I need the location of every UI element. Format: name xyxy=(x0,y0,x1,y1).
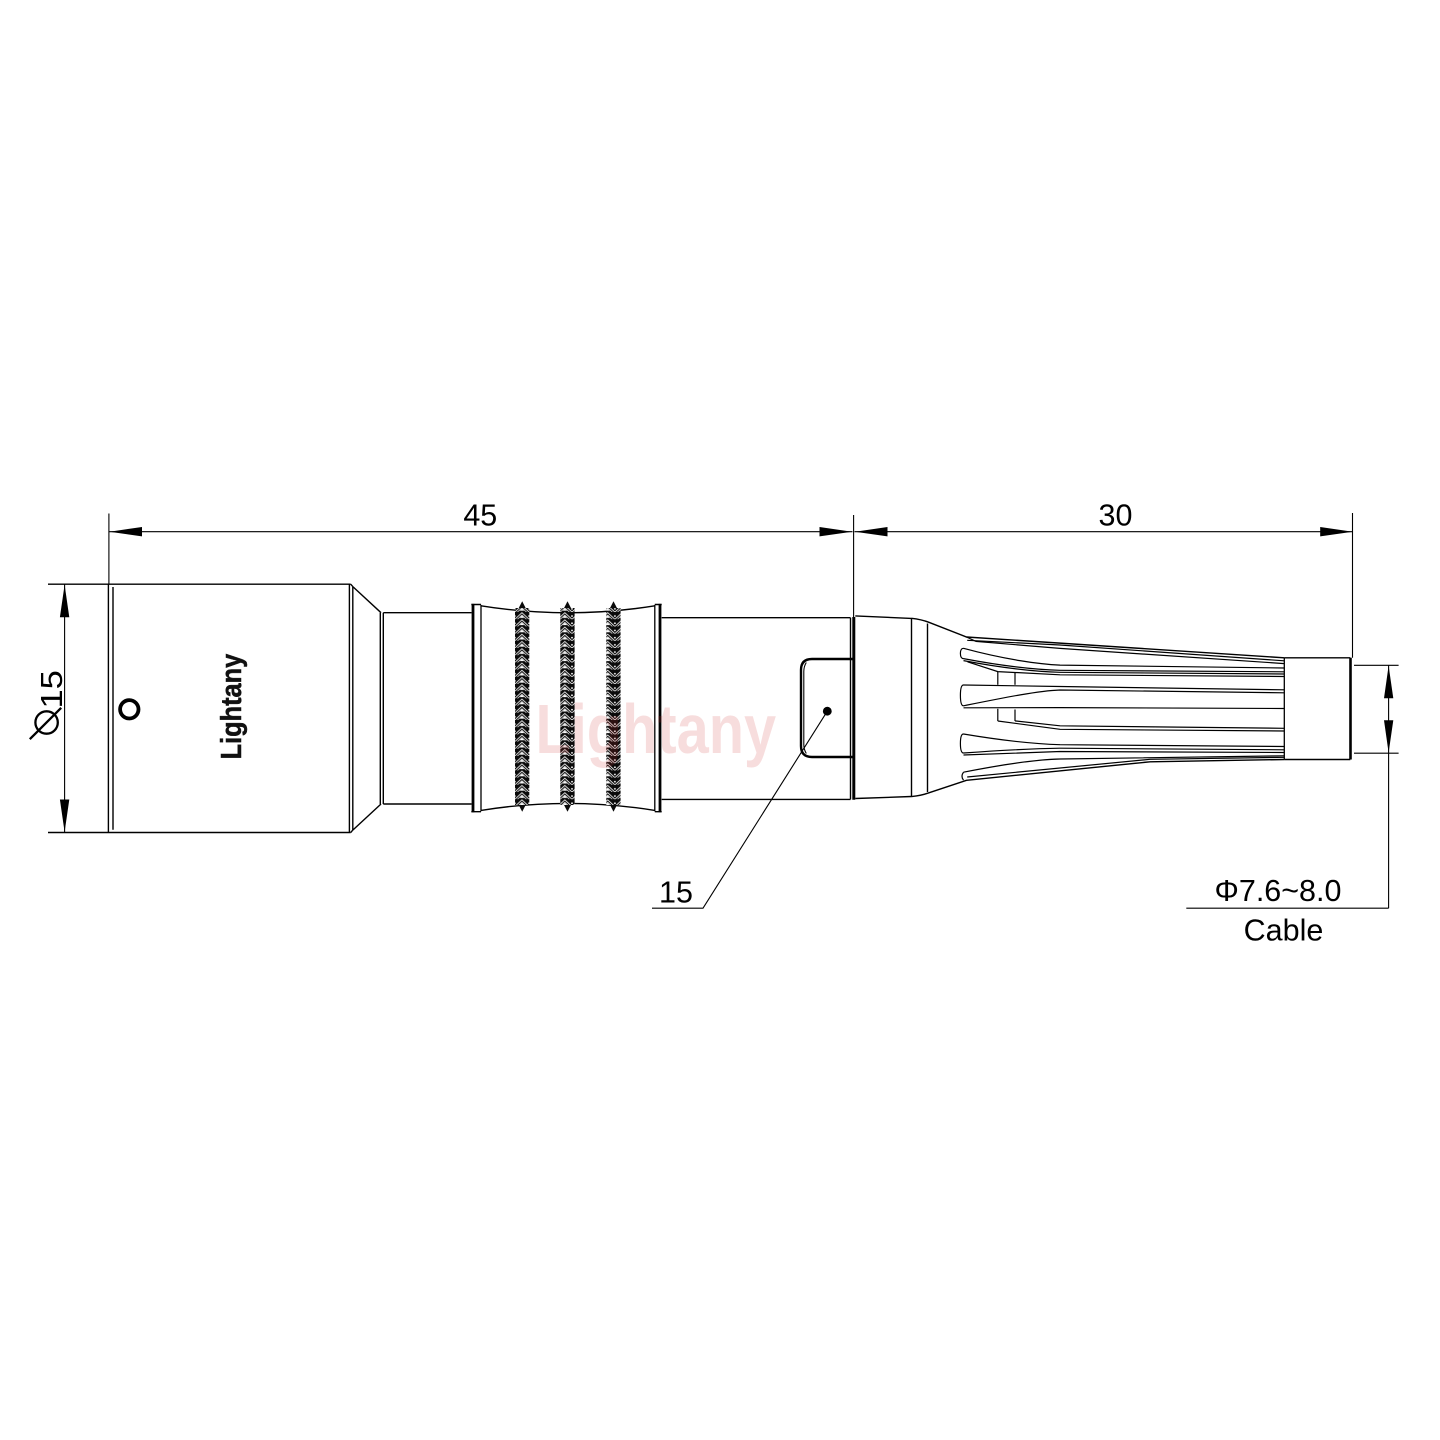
svg-text:30: 30 xyxy=(1099,499,1133,533)
svg-text:Cable: Cable xyxy=(1244,913,1324,947)
svg-text:45: 45 xyxy=(463,499,497,533)
svg-text:Φ7.6~8.0: Φ7.6~8.0 xyxy=(1215,874,1342,908)
svg-text:15: 15 xyxy=(35,670,69,708)
svg-text:Lightany: Lightany xyxy=(215,654,247,760)
svg-text:Lightany: Lightany xyxy=(536,690,777,769)
svg-text:15: 15 xyxy=(659,875,693,909)
